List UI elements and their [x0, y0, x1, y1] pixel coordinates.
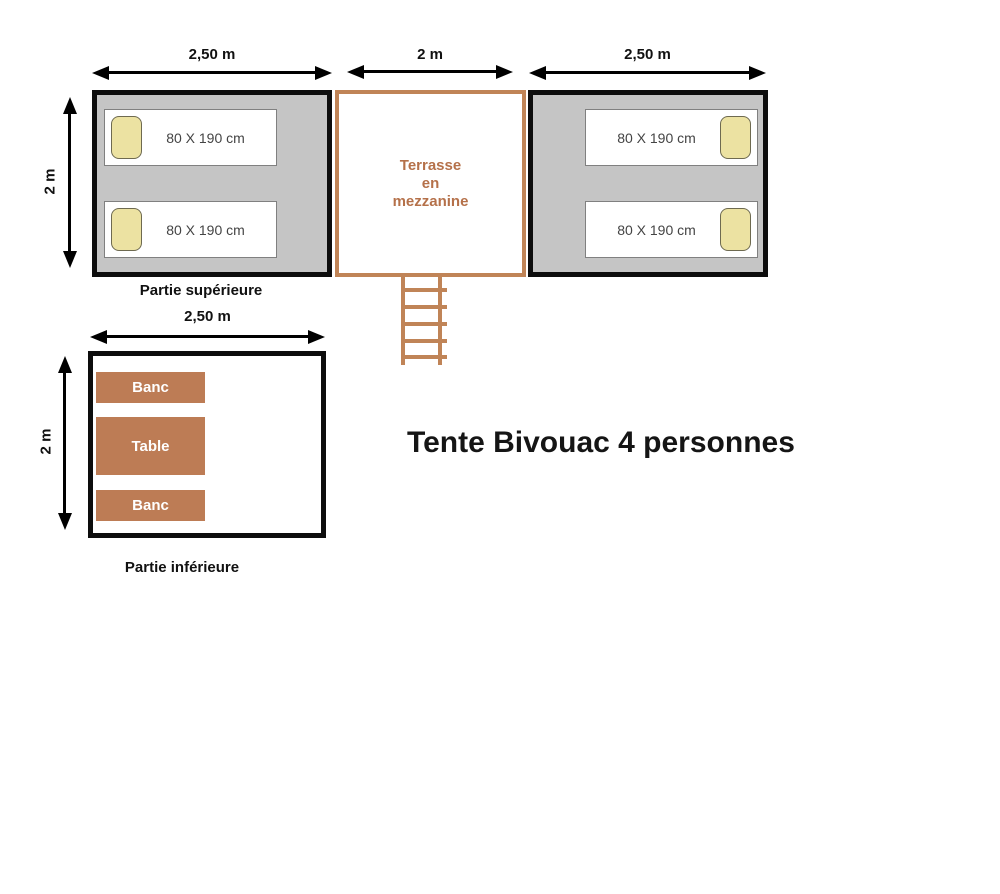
- bench: Banc: [96, 372, 205, 403]
- terrace-label-line: mezzanine: [393, 193, 469, 211]
- left-room-width-arrow: [92, 66, 332, 80]
- upper-room-height-label: 2 m: [42, 162, 59, 202]
- arrowhead-right-icon: [315, 66, 332, 80]
- bench-label: Banc: [132, 379, 169, 396]
- ladder-rung: [401, 322, 447, 326]
- floor-plan-diagram: 2,50 m 2 m 2,50 m 2 m 80 X 190 cm 80 X 1…: [0, 0, 1000, 894]
- lower-room-height-label: 2 m: [38, 422, 55, 462]
- lower-dining-room: Banc Table Banc: [88, 351, 326, 538]
- ladder-rung: [401, 288, 447, 292]
- bench-label: Banc: [132, 497, 169, 514]
- arrow-line: [541, 71, 754, 74]
- table: Table: [96, 417, 205, 475]
- terrace-width-label: 2 m: [347, 46, 513, 63]
- arrowhead-down-icon: [58, 513, 72, 530]
- pillow-icon: [720, 116, 751, 159]
- upper-left-sleeping-room: 80 X 190 cm 80 X 190 cm: [92, 90, 332, 277]
- upper-right-sleeping-room: 80 X 190 cm 80 X 190 cm: [528, 90, 768, 277]
- arrow-line: [63, 368, 66, 518]
- pillow-icon: [720, 208, 751, 251]
- pillow-icon: [111, 208, 142, 251]
- bed: 80 X 190 cm: [104, 201, 277, 258]
- lower-section-label: Partie inférieure: [102, 559, 262, 576]
- right-room-width-arrow: [529, 66, 766, 80]
- terrace-label-line: Terrasse: [393, 157, 469, 175]
- arrow-line: [102, 335, 313, 338]
- lower-room-height-arrow: [58, 356, 72, 530]
- lower-room-width-label: 2,50 m: [90, 308, 325, 325]
- arrow-line: [104, 71, 320, 74]
- page-title: Tente Bivouac 4 personnes: [407, 426, 795, 460]
- bed: 80 X 190 cm: [585, 109, 758, 166]
- arrow-line: [68, 109, 71, 256]
- arrowhead-right-icon: [308, 330, 325, 344]
- bed: 80 X 190 cm: [104, 109, 277, 166]
- lower-room-width-arrow: [90, 330, 325, 344]
- arrowhead-right-icon: [496, 65, 513, 79]
- mezzanine-terrace: Terrasse en mezzanine: [335, 90, 526, 277]
- terrace-label-line: en: [393, 175, 469, 193]
- terrace-label: Terrasse en mezzanine: [393, 157, 469, 211]
- pillow-icon: [111, 116, 142, 159]
- arrow-line: [359, 70, 501, 73]
- ladder-rung: [401, 339, 447, 343]
- arrowhead-right-icon: [749, 66, 766, 80]
- upper-room-height-arrow: [63, 97, 77, 268]
- terrace-width-arrow: [347, 65, 513, 79]
- table-label: Table: [131, 438, 169, 455]
- bench: Banc: [96, 490, 205, 521]
- right-room-width-label: 2,50 m: [529, 46, 766, 63]
- arrowhead-down-icon: [63, 251, 77, 268]
- ladder-rung: [401, 355, 447, 359]
- left-room-width-label: 2,50 m: [92, 46, 332, 63]
- upper-section-label: Partie supérieure: [121, 282, 281, 299]
- ladder-rung: [401, 305, 447, 309]
- bed: 80 X 190 cm: [585, 201, 758, 258]
- mezzanine-ladder: [401, 277, 447, 365]
